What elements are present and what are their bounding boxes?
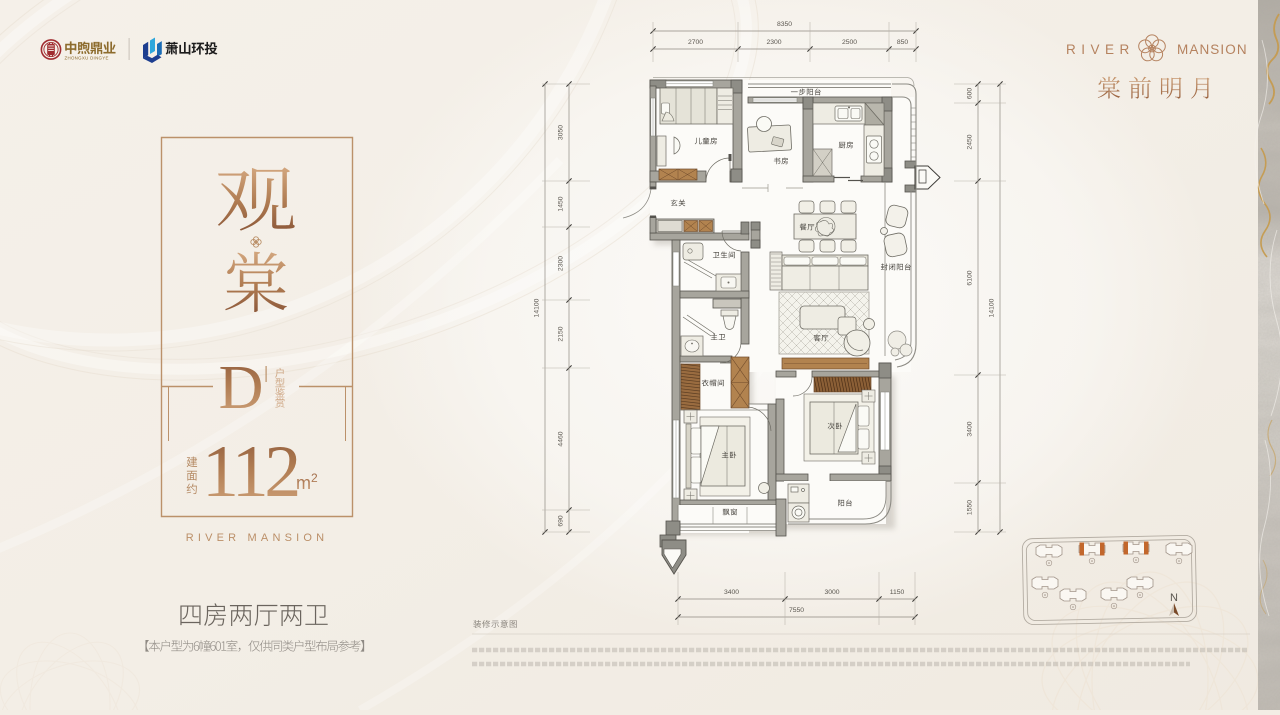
svg-text:1450: 1450 (558, 196, 565, 211)
svg-text:2500: 2500 (842, 39, 857, 46)
svg-text:14100: 14100 (534, 298, 541, 317)
svg-text:1550: 1550 (967, 500, 974, 515)
svg-text:MANSION: MANSION (1177, 42, 1248, 57)
svg-text:14100: 14100 (989, 298, 996, 317)
svg-text:6100: 6100 (967, 270, 974, 285)
svg-text:4460: 4460 (558, 431, 565, 446)
svg-text:3400: 3400 (967, 421, 974, 436)
svg-text:2300: 2300 (766, 39, 781, 46)
svg-text:RIVER MANSION: RIVER MANSION (186, 532, 329, 544)
svg-text:3000: 3000 (824, 589, 839, 596)
svg-text:1150: 1150 (890, 589, 905, 596)
svg-text:ZHONGXU DINGYE: ZHONGXU DINGYE (65, 56, 109, 61)
svg-text:3400: 3400 (724, 589, 739, 596)
svg-text:2700: 2700 (688, 39, 703, 46)
svg-text:7550: 7550 (789, 607, 804, 614)
svg-text:600: 600 (967, 88, 974, 100)
svg-text:2450: 2450 (967, 134, 974, 149)
svg-text:112: 112 (202, 431, 297, 513)
svg-text:3050: 3050 (558, 125, 565, 140)
svg-text:RIVER: RIVER (1066, 42, 1135, 57)
svg-text:D: D (219, 354, 264, 422)
svg-text:8350: 8350 (777, 21, 792, 28)
svg-text:2300: 2300 (558, 256, 565, 271)
svg-text:850: 850 (897, 39, 909, 46)
svg-text:690: 690 (558, 515, 565, 527)
svg-text:N: N (1170, 592, 1178, 604)
svg-text:2150: 2150 (558, 326, 565, 341)
